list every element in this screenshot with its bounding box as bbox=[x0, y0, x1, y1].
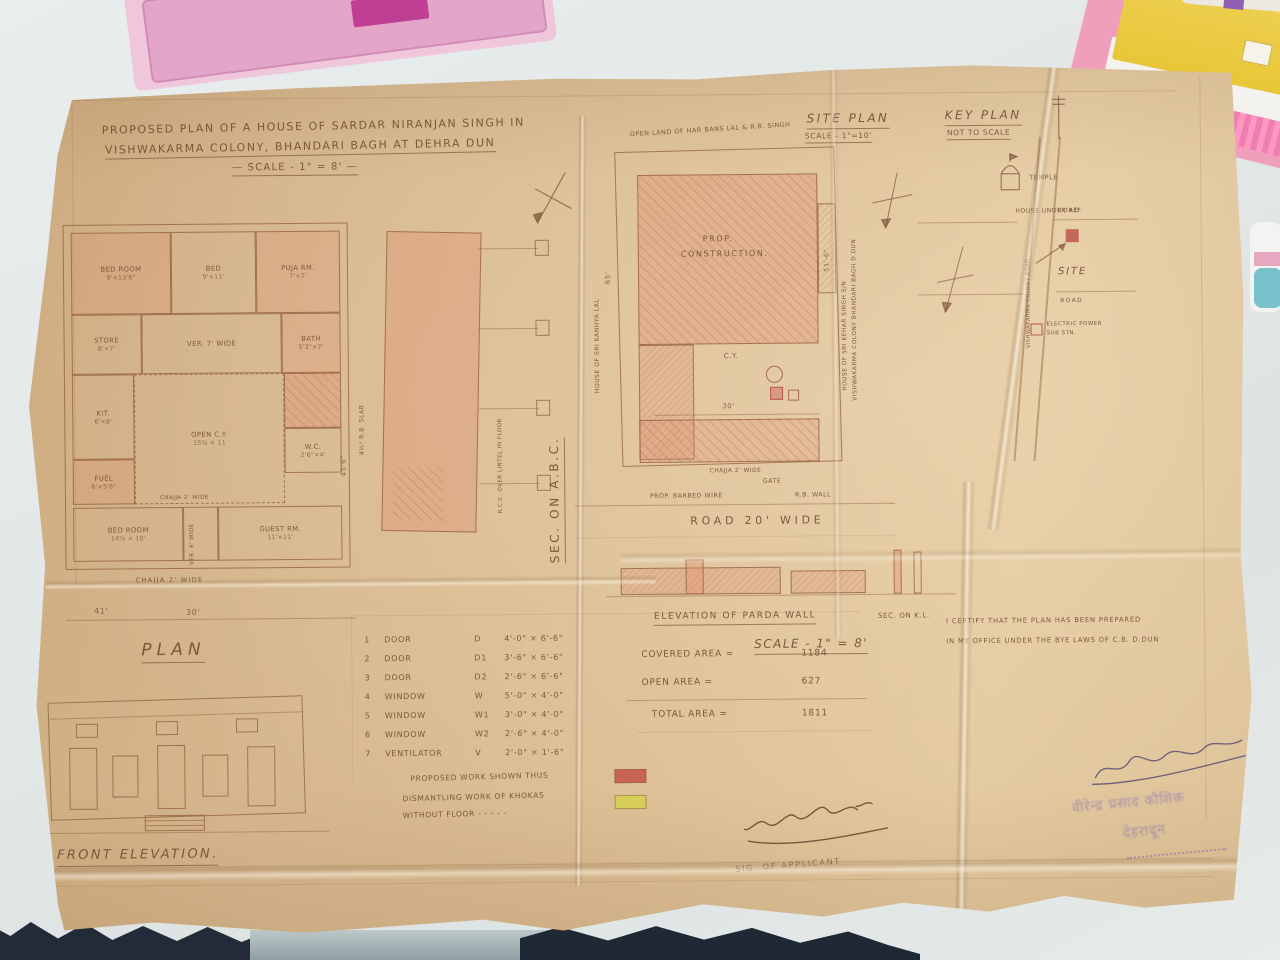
ventilator bbox=[236, 718, 258, 732]
legend-yellow-swatch bbox=[615, 795, 647, 809]
open-area-label: OPEN AREA = bbox=[642, 677, 713, 689]
chajja-mid-note: CHAJJA 2' WIDE bbox=[160, 495, 209, 503]
schedule-item: DOOR bbox=[384, 635, 411, 646]
title-line-2: VISHWAKARMA COLONY, BHANDARI BAGH AT DEH… bbox=[105, 136, 496, 160]
legend-red-swatch bbox=[614, 769, 646, 783]
site-small-square bbox=[788, 390, 799, 401]
front-elevation-drawing: FRONT ELEVATION. bbox=[44, 688, 335, 861]
key-plan-scale: NOT TO SCALE bbox=[947, 128, 1011, 140]
certificate-line-1: I CERTIFY THAT THE PLAN HAS BEEN PREPARE… bbox=[946, 616, 1141, 627]
blueprint-paper: PROPOSED PLAN OF A HOUSE OF SARDAR NIRAN… bbox=[16, 50, 1254, 951]
site-label: SITE bbox=[1058, 265, 1087, 278]
section-stairs bbox=[393, 467, 443, 522]
road-label: ROAD 20' WIDE bbox=[690, 513, 824, 528]
legend: PROPOSED WORK SHOWN THUS DISMANTLING WOR… bbox=[402, 767, 683, 839]
rb-wall-note: R.B. WALL bbox=[795, 491, 831, 499]
door bbox=[69, 748, 98, 810]
slab-note: 4½" R.B. SLAB bbox=[358, 405, 366, 456]
certificate-line-2: IN MY OFFICE UNDER THE BYE LAWS OF C.B. … bbox=[946, 635, 1159, 646]
barbed-wire-note: PROP. BARBED WIRE bbox=[650, 492, 723, 501]
site-dim-30: 30' bbox=[722, 402, 735, 411]
total-area-value: 1811 bbox=[802, 708, 828, 720]
prop-construction-2: CONSTRUCTION. bbox=[681, 249, 769, 260]
road-bottom-label: ROAD bbox=[1060, 297, 1083, 305]
legend-line-3: WITHOUT FLOOR - - - - - bbox=[403, 808, 508, 820]
photo-of-blueprint: PROPOSED PLAN OF A HOUSE OF SARDAR NIRAN… bbox=[0, 0, 1280, 960]
title-line-1: PROPOSED PLAN OF A HOUSE OF SARDAR NIRAN… bbox=[102, 116, 525, 138]
schedule-sym: D bbox=[474, 634, 481, 644]
room-label: PUJA RM. bbox=[281, 264, 315, 272]
legend-line-1: PROPOSED WORK SHOWN THUS bbox=[410, 771, 548, 784]
dim-41: 41' bbox=[94, 607, 109, 618]
schedule-size: 4'-0" × 6'-6" bbox=[504, 634, 563, 645]
ventilator bbox=[156, 721, 178, 735]
house-left-note: HOUSE OF SRI KANHYA LAL bbox=[593, 299, 602, 393]
total-area-label: TOTAL AREA = bbox=[652, 709, 728, 721]
cup-pink bbox=[1254, 252, 1280, 266]
title-scale: — SCALE - 1" = 8' — bbox=[232, 160, 358, 176]
section-window bbox=[535, 240, 549, 256]
open-area-value: 627 bbox=[802, 676, 822, 688]
door bbox=[247, 746, 276, 806]
open-land-note: OPEN LAND OF HAR BANS LAL & R.B. SINGH bbox=[630, 121, 791, 139]
prop-construction-1: PROP. bbox=[703, 234, 734, 245]
signature-ink bbox=[738, 798, 909, 859]
key-plan-header: KEY PLAN bbox=[945, 108, 1022, 126]
room-label: BED ROOM bbox=[108, 526, 149, 534]
room-label: FUEL bbox=[94, 474, 113, 482]
site-plan-header: SITE PLAN bbox=[807, 111, 890, 129]
dim-line bbox=[66, 617, 356, 621]
sec-kl-label: SEC. ON K.L. bbox=[878, 611, 930, 621]
room-label: W.C. bbox=[305, 442, 322, 450]
window bbox=[112, 755, 138, 797]
border-right bbox=[1199, 75, 1207, 820]
room-label: KIT. bbox=[96, 409, 110, 417]
certificate-note: I CERTIFY THAT THE PLAN HAS BEEN PREPARE… bbox=[946, 615, 1246, 668]
gate-label: GATE bbox=[763, 478, 782, 486]
house-right-note-2: VISHWAKARMA COLONY BHANDARI BAGH D.DUN bbox=[851, 239, 860, 401]
window bbox=[202, 755, 228, 797]
ventilator bbox=[76, 724, 98, 738]
cy-label: C.Y. bbox=[724, 352, 739, 361]
power-substation-icon bbox=[1030, 323, 1042, 335]
door bbox=[157, 745, 186, 809]
section-window bbox=[536, 400, 550, 416]
section-label: SEC. ON A.B.C. bbox=[547, 437, 566, 564]
officer-signature-ink bbox=[1084, 733, 1258, 794]
door-window-schedule: 1 DOOR D 4'-0" × 6'-6" 2 DOOR D1 3'-6" ×… bbox=[356, 615, 667, 778]
room-label: STORE bbox=[94, 336, 119, 344]
section-drawing: 4½" R.B. SLAB 45'6" R.C.C. OVER LINTEL I… bbox=[363, 215, 596, 577]
room-label: VER. 7' WIDE bbox=[187, 339, 236, 347]
area-statement: COVERED AREA = 1184 OPEN AREA = 627 TOTA… bbox=[636, 638, 872, 740]
temple-icon bbox=[995, 154, 1025, 192]
room-label: OPEN C.Y. bbox=[191, 431, 228, 439]
pen-band bbox=[1223, 0, 1244, 10]
north-arrow-icon bbox=[933, 247, 979, 317]
dim-30: 30' bbox=[186, 608, 201, 619]
room-label: BATH bbox=[301, 335, 321, 343]
house-right-note-1: HOUSE OF SRI KEHAR SINGH S/N bbox=[842, 281, 850, 391]
steps bbox=[145, 815, 205, 832]
covered-area-value: 1184 bbox=[801, 648, 827, 660]
north-arrow-icon bbox=[527, 170, 578, 230]
site-arrow bbox=[1036, 239, 1076, 265]
covered-area-label: COVERED AREA = bbox=[641, 649, 734, 661]
site-red-square bbox=[770, 387, 783, 400]
parda-wall-label: ELEVATION OF PARDA WALL bbox=[654, 610, 816, 625]
stamp-line-2: देहरादून bbox=[1122, 820, 1167, 843]
site-chajja: CHAJJA 2' WIDE bbox=[710, 468, 762, 476]
power-substation-label-1: ELECTRIC POWER bbox=[1046, 321, 1102, 329]
section-dim: 45'6" bbox=[340, 455, 349, 477]
plan-label: PLAN bbox=[141, 639, 206, 664]
legend-line-2: DISMANTLING WORK OF KHOKAS bbox=[402, 791, 544, 804]
room-label: BED ROOM bbox=[100, 265, 141, 273]
stairs bbox=[284, 373, 341, 428]
cup-teal bbox=[1254, 268, 1280, 308]
power-substation-label-2: SUB STN. bbox=[1047, 330, 1077, 337]
rcc-note: R.C.C. OVER LINTEL IN FLOOR bbox=[497, 418, 505, 513]
schedule-no: 1 bbox=[364, 635, 370, 645]
room-label: GUEST RM. bbox=[259, 525, 301, 533]
room-label: VER. 4' WIDE bbox=[189, 523, 197, 565]
ground-line bbox=[30, 831, 330, 835]
rule-schedule-left bbox=[351, 615, 353, 780]
dim-65: 65' bbox=[604, 272, 613, 285]
section-window bbox=[535, 320, 549, 336]
room-label: BED bbox=[206, 265, 221, 273]
north-arrow-icon bbox=[867, 173, 918, 233]
road-top-label: ROAD bbox=[1057, 207, 1080, 215]
floor-plan-drawing: BED ROOM 9'×13'6" BED 9'×11' PUJA RM. 7'… bbox=[63, 222, 357, 635]
well-icon bbox=[766, 366, 783, 383]
